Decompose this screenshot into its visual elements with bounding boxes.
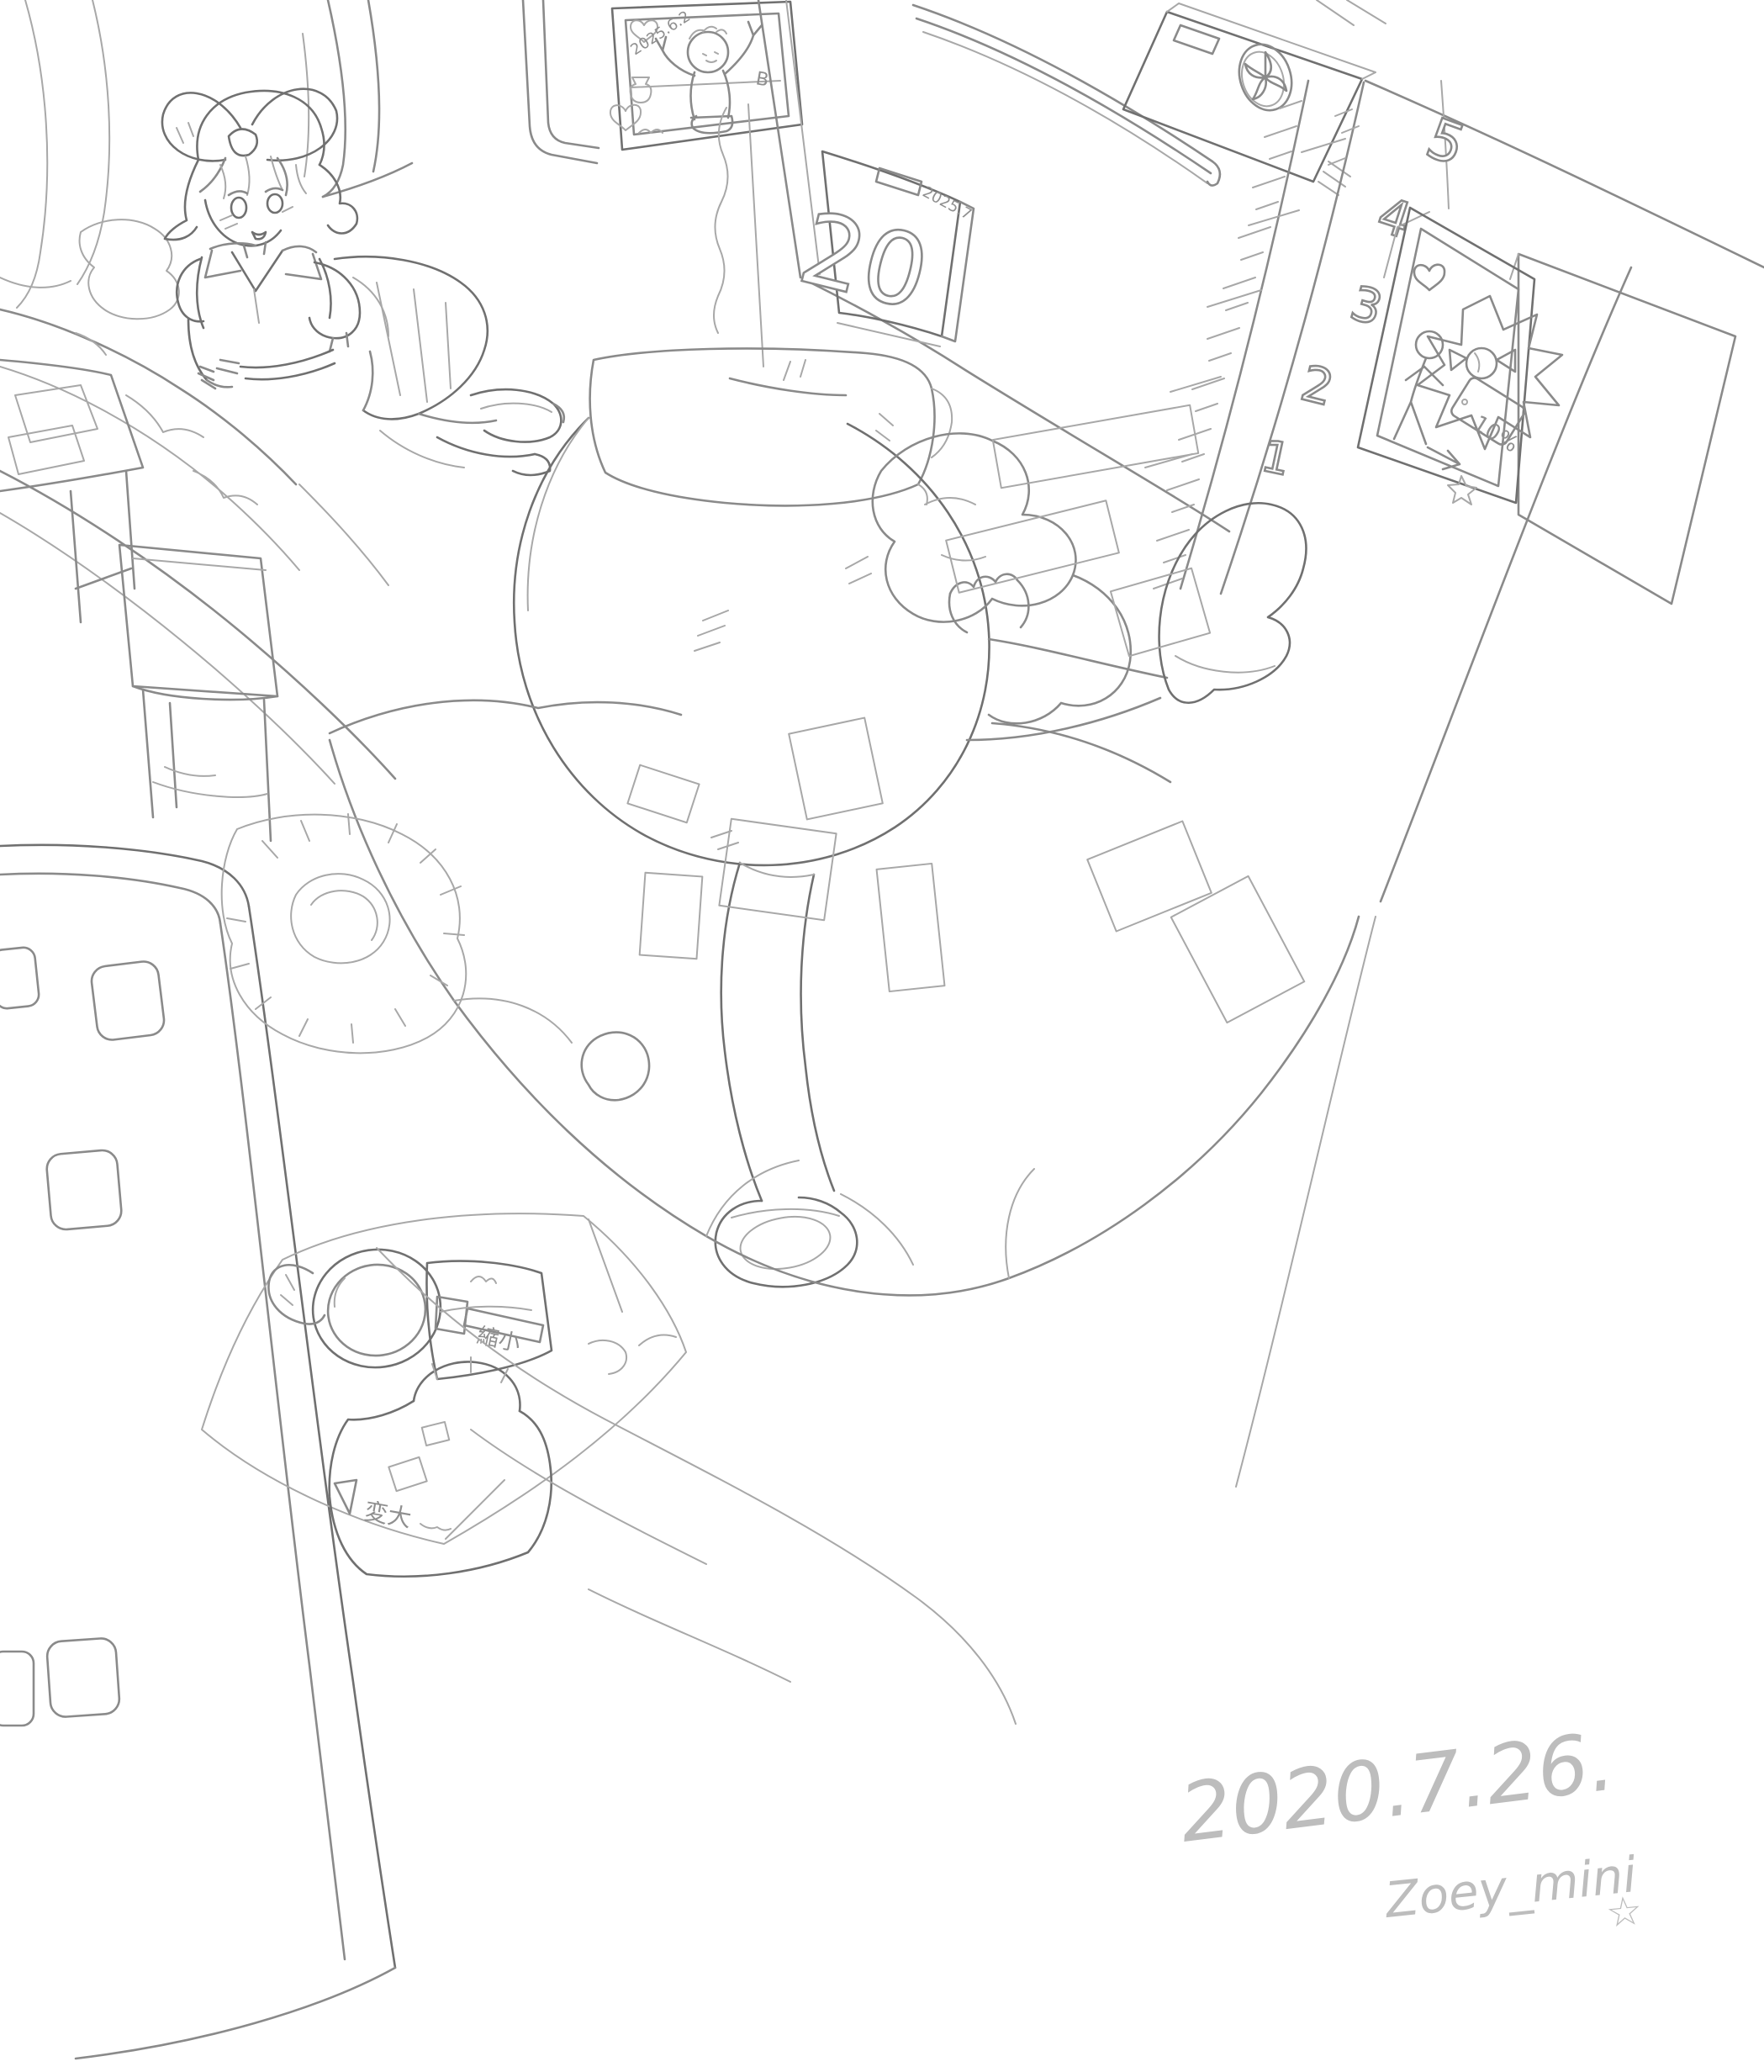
poster-date-label: 2025.6.2	[627, 8, 694, 59]
drawing-heart-icon	[1414, 265, 1444, 290]
window-frame	[523, 0, 599, 163]
ruler-mark-5: 5	[1418, 105, 1474, 178]
girl-skirt	[335, 256, 488, 419]
ruler-mark-1: 1	[1257, 431, 1295, 487]
curtain-left	[0, 0, 412, 308]
rug	[222, 814, 467, 1053]
desk-papers	[8, 385, 98, 474]
girl-torso	[197, 242, 330, 328]
floor-panel	[0, 845, 395, 2059]
poster-letter-label: B	[754, 68, 770, 91]
ruler-mark-3: 3	[1344, 276, 1388, 336]
calendar-day-number: 20	[789, 189, 939, 332]
shrink-bag-label: 縮小	[475, 1324, 523, 1357]
drawing-price-tag-icon: 10%	[1450, 376, 1527, 458]
snack-bag-shrink: 縮小	[427, 1261, 552, 1379]
girl-legs	[380, 389, 564, 475]
calendar: 2025.7 20	[789, 151, 974, 346]
height-ruler: 5 4 3 2 1	[1145, 81, 1474, 594]
signature-star-icon: ☆	[1603, 1887, 1645, 1937]
floor-blanket	[330, 700, 1359, 1296]
wall-corner	[714, 0, 1229, 531]
signature-artist: Zoey_mini	[1381, 1846, 1639, 1929]
warning-triangle-icon	[335, 1480, 356, 1514]
giant-figure	[514, 418, 1306, 1287]
leaning-panel	[1510, 254, 1735, 604]
poster-girl-figure	[656, 22, 762, 133]
girl-head	[165, 91, 357, 246]
drawing-candy-icon	[1450, 348, 1515, 378]
signature-date: 2020.7.26.	[1175, 1714, 1619, 1860]
grow-bag-label: 変大	[362, 1497, 414, 1532]
giant-leg-to-wall	[967, 503, 1306, 740]
ruler-mark-2: 2	[1296, 354, 1339, 417]
scattered-papers	[627, 405, 1304, 1023]
wall-poster: 2025.6.2 B	[610, 2, 802, 150]
ball-blob	[582, 1033, 649, 1101]
signature: 2020.7.26. Zoey_mini ☆	[1175, 1714, 1645, 1937]
framed-drawing: 10%	[1358, 208, 1562, 505]
chair	[119, 545, 277, 841]
girl-arms	[177, 259, 360, 388]
pillow	[590, 348, 953, 505]
ac-button	[1174, 25, 1219, 54]
desk	[0, 360, 143, 622]
drawing-tag-label: 10%	[1468, 410, 1523, 457]
clothes-pile	[873, 433, 1131, 723]
poster-vase-icon	[631, 77, 652, 103]
sketch-canvas: 2025.6.2 B 2025.7 20	[0, 0, 1764, 2072]
white-blanket	[377, 1248, 1016, 1724]
giant-leg-down	[716, 863, 913, 1287]
vent-shelf	[913, 5, 1220, 186]
